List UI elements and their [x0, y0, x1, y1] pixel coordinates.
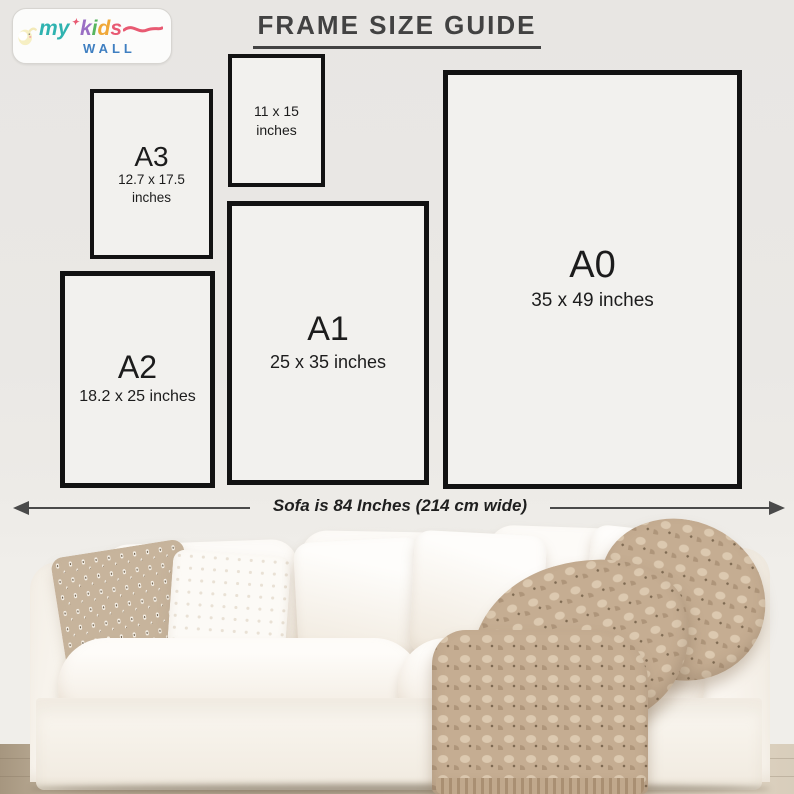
frame-unit-label: inches [132, 189, 171, 207]
sofa-floor-shadow [30, 784, 770, 794]
sofa-skirt [36, 698, 762, 790]
frame-size-guide-scene: my ✦ k i d s WALL FRAME SIZE GUIDE 11 x … [0, 0, 794, 794]
frame-name-label: A2 [118, 351, 157, 385]
frame-size-label: 11 x 15 [254, 102, 299, 120]
frame-name-label: A3 [134, 142, 168, 171]
title-row: FRAME SIZE GUIDE [0, 10, 794, 49]
frame-a0: A0 35 x 49 inches [443, 70, 742, 489]
frame-name-label: A0 [569, 246, 615, 286]
left-arrow-icon [22, 507, 250, 509]
right-arrow-icon [550, 507, 776, 509]
frame-a2: A2 18.2 x 25 inches [60, 271, 215, 488]
frame-unit-label: inches [256, 121, 296, 139]
knit-blanket-fringe [436, 778, 644, 794]
sofa-width-annotation: Sofa is 84 Inches (214 cm wide) [248, 496, 552, 516]
frame-name-label: A1 [307, 312, 349, 348]
frame-size-label: 35 x 49 inches [531, 289, 654, 314]
knit-blanket-front [432, 630, 648, 794]
page-title: FRAME SIZE GUIDE [253, 10, 540, 49]
frame-a3: A3 12.7 x 17.5 inches [90, 89, 213, 259]
frame-a1: A1 25 x 35 inches [227, 201, 429, 485]
frame-11x15: 11 x 15 inches [228, 54, 325, 187]
frame-size-label: 25 x 35 inches [270, 351, 386, 374]
frame-size-label: 12.7 x 17.5 [118, 171, 185, 189]
frame-size-label: 18.2 x 25 inches [79, 387, 196, 408]
